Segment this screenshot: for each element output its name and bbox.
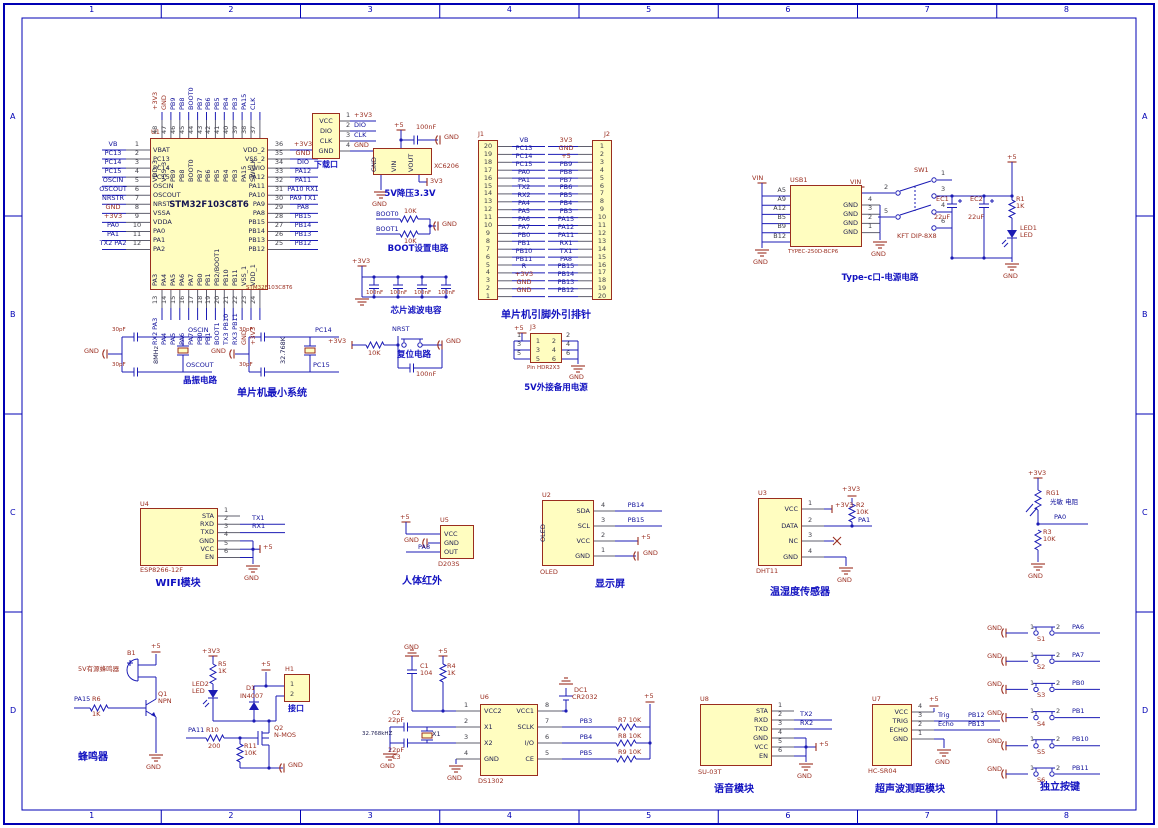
- net-label: Trig: [938, 712, 950, 719]
- pin-number: 1: [346, 112, 350, 119]
- pin-name: X1: [484, 724, 493, 731]
- caption-dht: 温湿度传感器: [770, 587, 830, 598]
- resistor-icon: [1035, 490, 1041, 510]
- net-label: PB5: [214, 97, 221, 110]
- mcu-pin-name: PB0: [197, 273, 204, 286]
- pin-name: EN: [205, 554, 214, 561]
- switch-icon: [896, 215, 900, 219]
- net-label: GND: [987, 625, 1002, 632]
- part-number: Pin HDR2X3: [527, 365, 560, 371]
- cap-value: 100nF: [438, 290, 455, 296]
- net-label: PB7: [197, 97, 204, 110]
- net-label: PB0: [197, 332, 204, 345]
- battery-value: CR2032: [572, 694, 598, 701]
- pin-number: 4: [224, 531, 228, 538]
- net-label: PB12: [295, 240, 312, 247]
- net-label: Echo: [938, 721, 954, 728]
- pin-number: 8: [135, 204, 139, 211]
- net-label: VB: [109, 141, 118, 148]
- pin-number: 1: [224, 507, 228, 514]
- switch-icon: [896, 191, 900, 195]
- gnd-tap-icon: [1002, 770, 1004, 779]
- net-label: PB1: [1072, 708, 1085, 715]
- pin-number: 28: [275, 213, 283, 220]
- mcu-pin-name: PA10: [249, 192, 265, 199]
- pin-number: 2: [290, 691, 294, 698]
- pin-number: 18: [197, 296, 204, 304]
- pin-number: A9: [777, 196, 786, 203]
- net-label: RX1: [252, 523, 265, 530]
- junction-dot: [441, 709, 444, 712]
- net-label: GND: [447, 775, 462, 782]
- frame-col-label: 4: [507, 6, 512, 14]
- net-label: NRST: [392, 326, 409, 333]
- net-label: GND: [84, 348, 99, 355]
- caption-regulator: 5V降压3.3V: [384, 190, 435, 199]
- net-label: GND: [296, 150, 311, 157]
- part-number: OLED: [540, 569, 558, 576]
- pin-number: 1: [808, 500, 812, 507]
- resistor-icon: [366, 342, 384, 348]
- j1-ref: J1: [478, 131, 484, 138]
- net-label: +3V3: [354, 112, 372, 119]
- pin-number: 22: [232, 296, 239, 304]
- frame-row-label: A: [1142, 113, 1147, 121]
- pin-number: 5: [884, 208, 888, 215]
- pin-name: GND: [199, 538, 214, 545]
- cap-value: 30pF: [239, 362, 253, 368]
- pin-number: 21: [223, 296, 230, 304]
- junction-dot: [1010, 194, 1013, 197]
- pin-number: 42: [205, 126, 212, 134]
- net-label: GND: [244, 575, 259, 582]
- cap-value: 100nF: [416, 124, 436, 131]
- mcu-pin-name: PB15: [248, 219, 265, 226]
- part-number: ESP8266-12F: [140, 567, 183, 574]
- net-label: +5: [261, 661, 271, 668]
- pin-number: 3: [224, 523, 228, 530]
- pin-number: 41: [214, 126, 221, 134]
- net-label: TX2: [800, 711, 813, 718]
- button-icon: [1050, 687, 1054, 691]
- mcu-pin-name: OSCOUT: [153, 192, 181, 199]
- mcu-pin-name: VDD_1: [250, 264, 257, 286]
- pin-number: 3: [918, 712, 922, 719]
- pin-number: 1: [1030, 624, 1034, 631]
- pin-number: 4: [346, 142, 350, 149]
- pin-number: 3: [941, 186, 945, 193]
- pin-number: 36: [275, 141, 283, 148]
- net-label: GND: [569, 374, 584, 381]
- pin-number: 33: [275, 168, 283, 175]
- pin-number: 8: [545, 702, 549, 709]
- regulator-body: [373, 148, 432, 175]
- net-label: GND: [837, 577, 852, 584]
- mcu-pin-name: VSSA: [153, 210, 170, 217]
- pin-name: TRIG: [893, 718, 908, 725]
- pin-number: 3: [536, 347, 540, 354]
- resistor-icon: [616, 740, 636, 746]
- q-type: NPN: [158, 698, 172, 705]
- net-label: PB13: [295, 231, 312, 238]
- mcu-pin-name: PB14: [248, 228, 265, 235]
- rtc-ref: U6: [480, 694, 489, 701]
- j3-ref: J3: [530, 324, 536, 331]
- pin-name: X2: [484, 740, 493, 747]
- net-label: VIN: [850, 179, 861, 186]
- pin-number: 1: [918, 730, 922, 737]
- frame-row-label: C: [1142, 509, 1148, 517]
- pin-number: 45: [179, 126, 186, 134]
- h1-body: [284, 674, 310, 702]
- res-value: R7 10K: [618, 717, 641, 724]
- net-label: PA0: [107, 222, 119, 229]
- net-label: GND: [404, 537, 419, 544]
- oled-side-label: OLED: [540, 524, 547, 542]
- net-label: TX3 PB10: [223, 314, 230, 345]
- frame-col-label: 5: [646, 6, 651, 14]
- led-arrow-icon: [1004, 243, 1008, 247]
- net-label: PB8: [179, 97, 186, 110]
- pin-number: 12: [133, 240, 141, 247]
- cap-value: 22uF: [968, 214, 984, 221]
- button-icon: [402, 343, 406, 347]
- caption-headers: 单片机引脚外引排针: [501, 310, 591, 321]
- pin-number: 6: [135, 186, 139, 193]
- net-label: GND: [404, 644, 419, 651]
- key-ref: S3: [1037, 692, 1045, 699]
- resistor-icon: [440, 664, 446, 682]
- pin-number: 35: [275, 150, 283, 157]
- mcu-pin-name: PA2: [153, 246, 165, 253]
- pin-name: STA: [756, 708, 768, 715]
- net-label: +5: [819, 741, 829, 748]
- mcu-pin-name: PA15: [241, 166, 248, 182]
- sonar-ref: U7: [872, 696, 881, 703]
- mcu-pin-name: SWCLK: [250, 159, 257, 182]
- res-value: 10K: [404, 208, 417, 215]
- pin-name: GND: [843, 220, 858, 227]
- pin-number: B12: [773, 233, 786, 240]
- pin-name: SCLK: [517, 724, 534, 731]
- pin-name: GND: [484, 756, 499, 763]
- net-label: PA7: [188, 333, 195, 345]
- mcu-pin-name: PB11: [232, 269, 239, 286]
- pin-number: 47: [161, 126, 168, 134]
- net-label: +3V3: [104, 213, 122, 220]
- net-label: PB0: [1072, 680, 1085, 687]
- pin-number: A5: [777, 187, 786, 194]
- net-label: DIO: [354, 122, 366, 129]
- pin-name: VCC: [894, 709, 908, 716]
- pin-number: 46: [170, 126, 177, 134]
- mcu-pin-name: PB6: [205, 169, 212, 182]
- net-label: GND: [797, 773, 812, 780]
- pin-number: 1: [290, 681, 294, 688]
- res-ref: R10: [206, 727, 219, 734]
- pin-number: 2: [808, 517, 812, 524]
- net-label: PA0: [1054, 514, 1066, 521]
- mcu-pin-name: PA7: [188, 274, 195, 286]
- pin-number: 1: [536, 338, 540, 345]
- gnd-tap-icon: [1002, 629, 1004, 638]
- pin-number: 4: [868, 196, 872, 203]
- res-value: 1K: [92, 711, 100, 718]
- net-label: RX2 PA3: [152, 318, 159, 345]
- res-value: R9 10K: [618, 749, 641, 756]
- caption-crystal: 晶振电路: [183, 377, 217, 386]
- res-value: 1K: [447, 670, 455, 677]
- pir-ref: U5: [440, 517, 449, 524]
- mcu-pin-name: OSCIN: [153, 183, 174, 190]
- key-ref: S1: [1037, 636, 1045, 643]
- pin-number: 19: [205, 296, 212, 304]
- pin-number: A12: [773, 205, 786, 212]
- led-value: LED: [192, 688, 205, 695]
- frame-row-label: A: [10, 113, 15, 121]
- dht-ref: U3: [758, 490, 767, 497]
- pin-name: SCL: [578, 523, 590, 530]
- gnd-tap-icon: [1002, 657, 1004, 666]
- pin-number: 6: [545, 734, 549, 741]
- pin-name: EN: [759, 753, 768, 760]
- pin-name: GND: [843, 229, 858, 236]
- pin-number: 1: [1030, 765, 1034, 772]
- button-icon: [418, 343, 422, 347]
- net-label: PC15: [105, 168, 122, 175]
- net-label: +5: [438, 648, 448, 655]
- pin-number: 4: [566, 341, 570, 348]
- oled-ref: U2: [542, 492, 551, 499]
- pin-number: 2: [224, 515, 228, 522]
- mcu-pin-name: PA8: [253, 210, 265, 217]
- pin-number: 40: [223, 126, 230, 134]
- pin-number: 2: [778, 711, 782, 718]
- pin-name: VCC1: [516, 708, 534, 715]
- res-ref: R6: [92, 696, 101, 703]
- net-label: GND: [1028, 573, 1043, 580]
- crystal-ref: X1: [432, 731, 441, 738]
- net-label: BOOT0: [188, 87, 195, 110]
- gnd-tap-icon: [230, 350, 232, 359]
- pin-number: 30: [275, 195, 283, 202]
- pin-number: 5: [135, 177, 139, 184]
- caption-buzzer: 蜂鸣器: [78, 752, 108, 763]
- j3-body: [530, 333, 562, 363]
- net-label: PA9 TX1: [290, 195, 317, 202]
- pin-number: 5: [545, 750, 549, 757]
- part-number: TYPEC-250D-BCP6: [788, 249, 838, 255]
- net-label: PA8: [418, 544, 430, 551]
- pin-number: 13: [152, 296, 159, 304]
- net-label: GND: [354, 142, 369, 149]
- pin-number: 3: [808, 532, 812, 539]
- pin-name: SDA: [577, 508, 590, 515]
- pin-number: 2: [884, 184, 888, 191]
- net-label: GND: [987, 653, 1002, 660]
- pin-name: DATA: [781, 523, 798, 530]
- net-label: GND: [753, 259, 768, 266]
- frame-col-label: 3: [368, 812, 373, 820]
- pin-name: VCC: [576, 538, 590, 545]
- net-label: OSCOUT: [186, 362, 214, 369]
- caption-reset: 复位电路: [397, 351, 431, 360]
- net-label: PA15: [241, 94, 248, 110]
- net-label: PB5: [580, 750, 593, 757]
- resistor-icon: [1035, 530, 1041, 550]
- caption-backup: 5V外接备用电源: [524, 384, 588, 393]
- net-label: +5: [929, 696, 939, 703]
- mcu-pin-name: VSS_3: [161, 162, 168, 182]
- pin-name: DIO: [320, 128, 332, 135]
- frame-row-label: B: [1142, 311, 1148, 319]
- mcu-pin-name: PA1: [153, 237, 165, 244]
- pin-number: 29: [275, 204, 283, 211]
- resistor-icon: [210, 664, 216, 684]
- net-label: GND: [106, 204, 121, 211]
- net-label: GND: [380, 763, 395, 770]
- part-number: DHT11: [756, 568, 778, 575]
- net-label: BOOT1: [214, 322, 221, 345]
- res-value: 10K: [856, 509, 869, 516]
- caption-wifi: WIFI模块: [155, 578, 200, 589]
- pin-name: RXD: [754, 717, 768, 724]
- net-label: PB15: [295, 213, 312, 220]
- net-label: NRSTR: [102, 195, 124, 202]
- npn-icon: [151, 712, 156, 717]
- net-label: OSCOUT: [99, 186, 127, 193]
- pin-number: B5: [777, 214, 786, 221]
- pin-name: CLK: [320, 138, 332, 145]
- gnd-tap-icon: [1002, 713, 1004, 722]
- cap-value: 100nF: [416, 371, 436, 378]
- net-label: +3V3: [152, 92, 159, 110]
- net-label: +3V3: [1028, 470, 1046, 477]
- pin-name: TXD: [201, 529, 214, 536]
- pin-number: 11: [133, 231, 141, 238]
- pin-number: 37: [250, 126, 257, 134]
- crystal-icon: [178, 348, 188, 353]
- net-label: PB10: [1072, 736, 1089, 743]
- net-label: GND: [935, 759, 950, 766]
- led-arrow-icon: [205, 703, 209, 707]
- pin-number: 26: [275, 231, 283, 238]
- pin-number: 16: [179, 296, 186, 304]
- led-icon: [208, 690, 218, 698]
- pin-name: TXD: [755, 726, 768, 733]
- pin-name: GND: [893, 736, 908, 743]
- net-label: +3V3: [202, 648, 220, 655]
- frame-col-label: 7: [925, 6, 930, 14]
- button-icon: [1050, 772, 1054, 776]
- pin-number: 4: [601, 502, 605, 509]
- mcu-pin-name: VSS_1: [241, 266, 248, 286]
- switch-icon: [932, 226, 936, 230]
- voice-ref: U8: [700, 696, 709, 703]
- net-label: GND: [372, 201, 387, 208]
- caption-keys: 独立按键: [1040, 782, 1080, 793]
- pin-number: 3: [135, 159, 139, 166]
- pin-number: 4: [808, 548, 812, 555]
- pin-number: 2: [135, 150, 139, 157]
- net-label: PA4: [161, 333, 168, 345]
- part-number: HC-SR04: [868, 768, 897, 775]
- key-ref: S4: [1037, 721, 1045, 728]
- sw-ref: SW1: [914, 167, 929, 174]
- mcu-pin-name: PB9: [170, 169, 177, 182]
- pin-name: VCC: [754, 744, 768, 751]
- net-label: RX2: [800, 720, 813, 727]
- resistor-icon: [400, 216, 418, 222]
- pin-number: 38: [241, 126, 248, 134]
- pin-name: GND: [319, 148, 334, 155]
- mcu-pin-name: PB13: [248, 237, 265, 244]
- part-number: KFT DIP-8X8: [897, 233, 937, 240]
- crystal-freq: 8MHz: [153, 346, 160, 364]
- pin-number: 20: [214, 296, 221, 304]
- junction-dot: [444, 275, 447, 278]
- net-label: PB12: [558, 287, 575, 294]
- net-label: PB14: [295, 222, 312, 229]
- diode-ref: D1: [246, 685, 255, 692]
- pin-number: 27: [275, 222, 283, 229]
- pin-number: 3: [346, 132, 350, 139]
- mcu-pin-name: PA9: [253, 201, 265, 208]
- ldr-ref: RG1: [1046, 490, 1060, 497]
- frame-col-label: 7: [925, 812, 930, 820]
- res-value: 1K: [218, 668, 226, 675]
- pin-number: 4: [135, 168, 139, 175]
- button-icon: [1050, 715, 1054, 719]
- res-value: R8 10K: [618, 733, 641, 740]
- key-ref: S5: [1037, 749, 1045, 756]
- pin-number: 5: [778, 738, 782, 745]
- resistor-icon: [1009, 200, 1015, 218]
- mcu-title: STM32F103C8T6: [169, 202, 249, 209]
- crystal-icon: [305, 348, 315, 353]
- net-label: PB3: [580, 718, 593, 725]
- pin-number: 39: [232, 126, 239, 134]
- net-label: PB3: [232, 97, 239, 110]
- frame-col-label: 2: [228, 6, 233, 14]
- net-label: PA12: [295, 168, 311, 175]
- net-label: +5: [641, 534, 651, 541]
- part-number: SU-03T: [698, 769, 721, 776]
- pin-number: 1: [778, 702, 782, 709]
- net-label: +5: [1007, 154, 1017, 161]
- net-label: BOOT1: [376, 226, 399, 233]
- cap-value: 22pF: [388, 717, 404, 724]
- pin-number: 3: [517, 341, 521, 348]
- net-label: OSCIN: [188, 327, 209, 334]
- caption-minsys: 单片机最小系统: [237, 388, 307, 399]
- net-label: GND: [987, 738, 1002, 745]
- pin-number: 2: [1056, 736, 1060, 743]
- net-label: GND: [444, 134, 459, 141]
- net-label: GND: [517, 287, 532, 294]
- junction-dot: [982, 256, 985, 259]
- pin-name: ECHO: [889, 727, 908, 734]
- pin-number: 6: [566, 350, 570, 357]
- net-label: GND: [211, 348, 226, 355]
- pin-number: 48: [152, 126, 159, 134]
- pin-number: 1: [868, 223, 872, 230]
- frame-row-label: D: [10, 707, 16, 715]
- pin-number: 1: [135, 141, 139, 148]
- net-label: +3V3: [328, 338, 346, 345]
- frame-col-label: 3: [368, 6, 373, 14]
- pin-number: 7: [545, 718, 549, 725]
